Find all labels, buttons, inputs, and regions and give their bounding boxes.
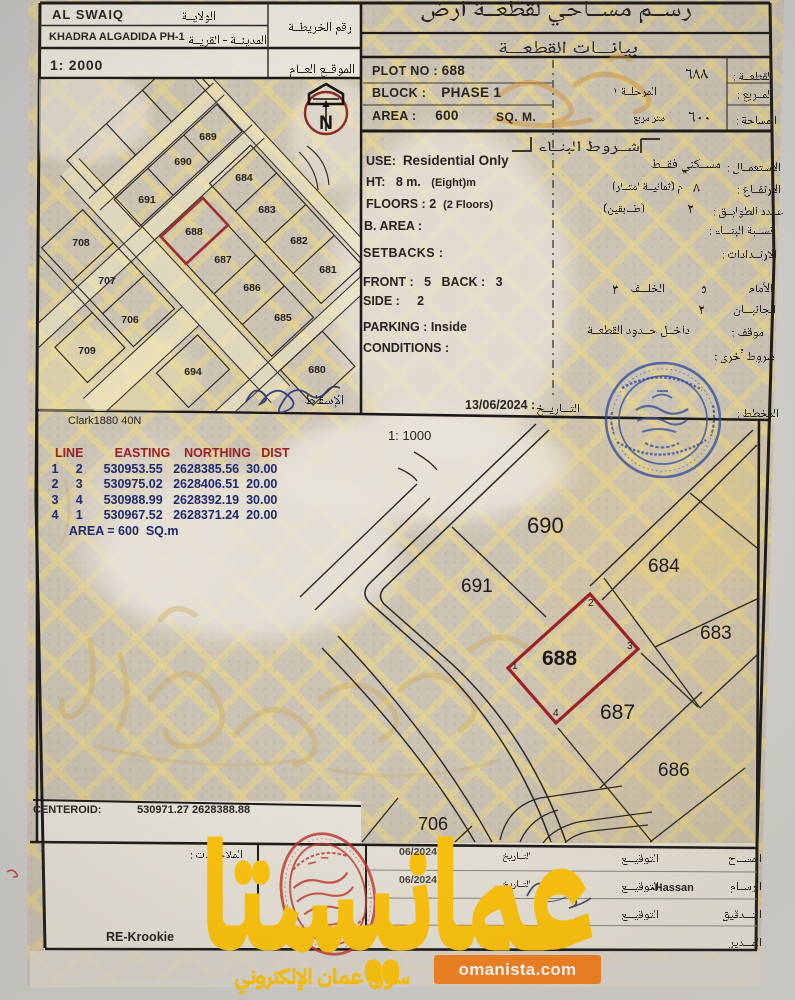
svg-text:691: 691 [461, 576, 493, 597]
svg-text:708: 708 [72, 237, 90, 249]
svg-text:688: 688 [542, 647, 577, 670]
svg-text:2: 2 [588, 598, 594, 609]
svg-text:688: 688 [185, 226, 203, 238]
svg-text:1: 1 [512, 661, 518, 672]
svg-text:684: 684 [648, 556, 680, 577]
svg-text:680: 680 [308, 364, 326, 376]
svg-text:706: 706 [418, 814, 448, 834]
svg-text:681: 681 [319, 264, 337, 276]
svg-text:687: 687 [214, 254, 232, 266]
svg-text:694: 694 [184, 366, 202, 378]
svg-text:691: 691 [138, 194, 156, 206]
svg-text:707: 707 [98, 275, 116, 287]
svg-text:709: 709 [78, 345, 96, 357]
svg-text:4: 4 [553, 708, 559, 719]
svg-text:689: 689 [199, 131, 217, 143]
svg-text:686: 686 [243, 282, 261, 294]
svg-text:690: 690 [527, 513, 564, 538]
svg-text:690: 690 [174, 156, 192, 168]
svg-text:687: 687 [600, 701, 635, 724]
svg-text:685: 685 [274, 312, 292, 324]
svg-text:3: 3 [627, 641, 633, 652]
svg-text:682: 682 [290, 235, 308, 247]
svg-text:686: 686 [658, 760, 690, 781]
svg-text:683: 683 [700, 623, 732, 644]
svg-text:683: 683 [258, 204, 276, 216]
svg-text:706: 706 [121, 314, 139, 326]
svg-text:684: 684 [235, 172, 253, 184]
